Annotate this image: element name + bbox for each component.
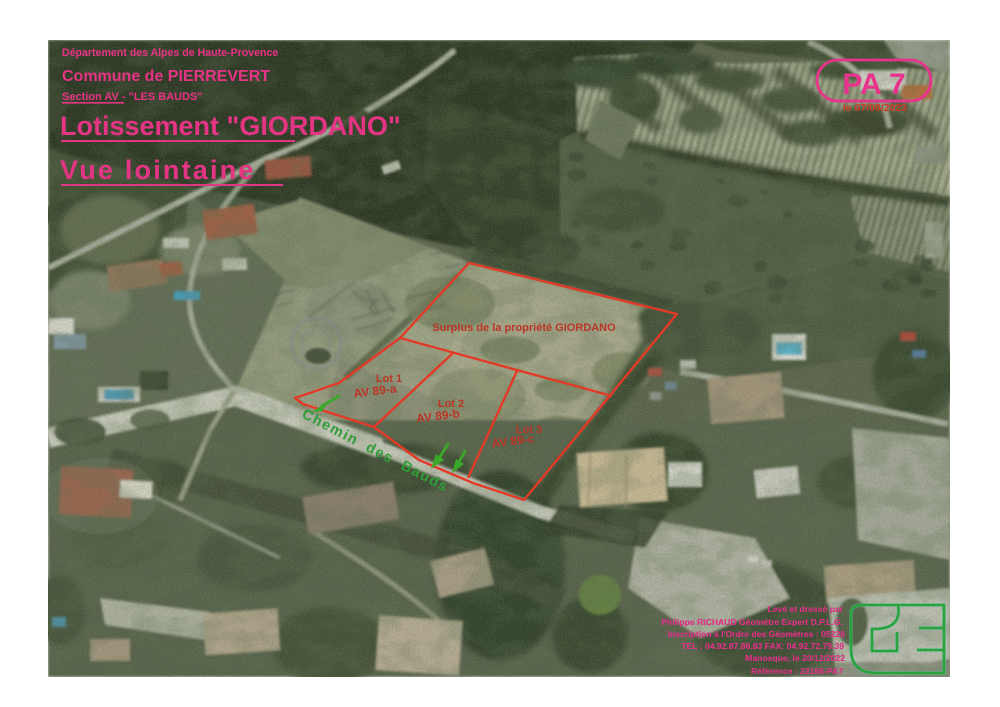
svg-text:Philippe RICHAUD Géomètre Expe: Philippe RICHAUD Géomètre Expert D.P.L.G… [661,617,843,627]
svg-text:Manosque, le 20/12/2022: Manosque, le 20/12/2022 [745,653,845,663]
svg-text:Surplus de la propriété GIORDA: Surplus de la propriété GIORDANO [432,322,616,334]
svg-text:PA 7: PA 7 [842,68,905,101]
svg-text:Département des Alpes de Haute: Département des Alpes de Haute-Provence [62,47,278,59]
svg-text:TEL : 04.92.87.86.83 FAX: 04.: TEL : 04.92.87.86.83 FAX: 04.92.72.79.39 [681,641,844,651]
svg-text:Levé et dressé par: Levé et dressé par [768,604,844,614]
svg-text:Section AV - "LES BAUDS": Section AV - "LES BAUDS" [62,91,203,103]
svg-text:Inscription à l'Ordre des Géom: Inscription à l'Ordre des Géomètres : 05… [668,629,846,639]
svg-text:Lotissement "GIORDANO": Lotissement "GIORDANO" [60,111,401,141]
svg-text:le 07/08/2023: le 07/08/2023 [843,102,907,114]
svg-text:Référence : 22166-PA7: Référence : 22166-PA7 [751,666,843,676]
svg-text:Vue lointaine: Vue lointaine [60,155,256,185]
svg-text:Commune de PIERREVERT: Commune de PIERREVERT [62,68,270,85]
